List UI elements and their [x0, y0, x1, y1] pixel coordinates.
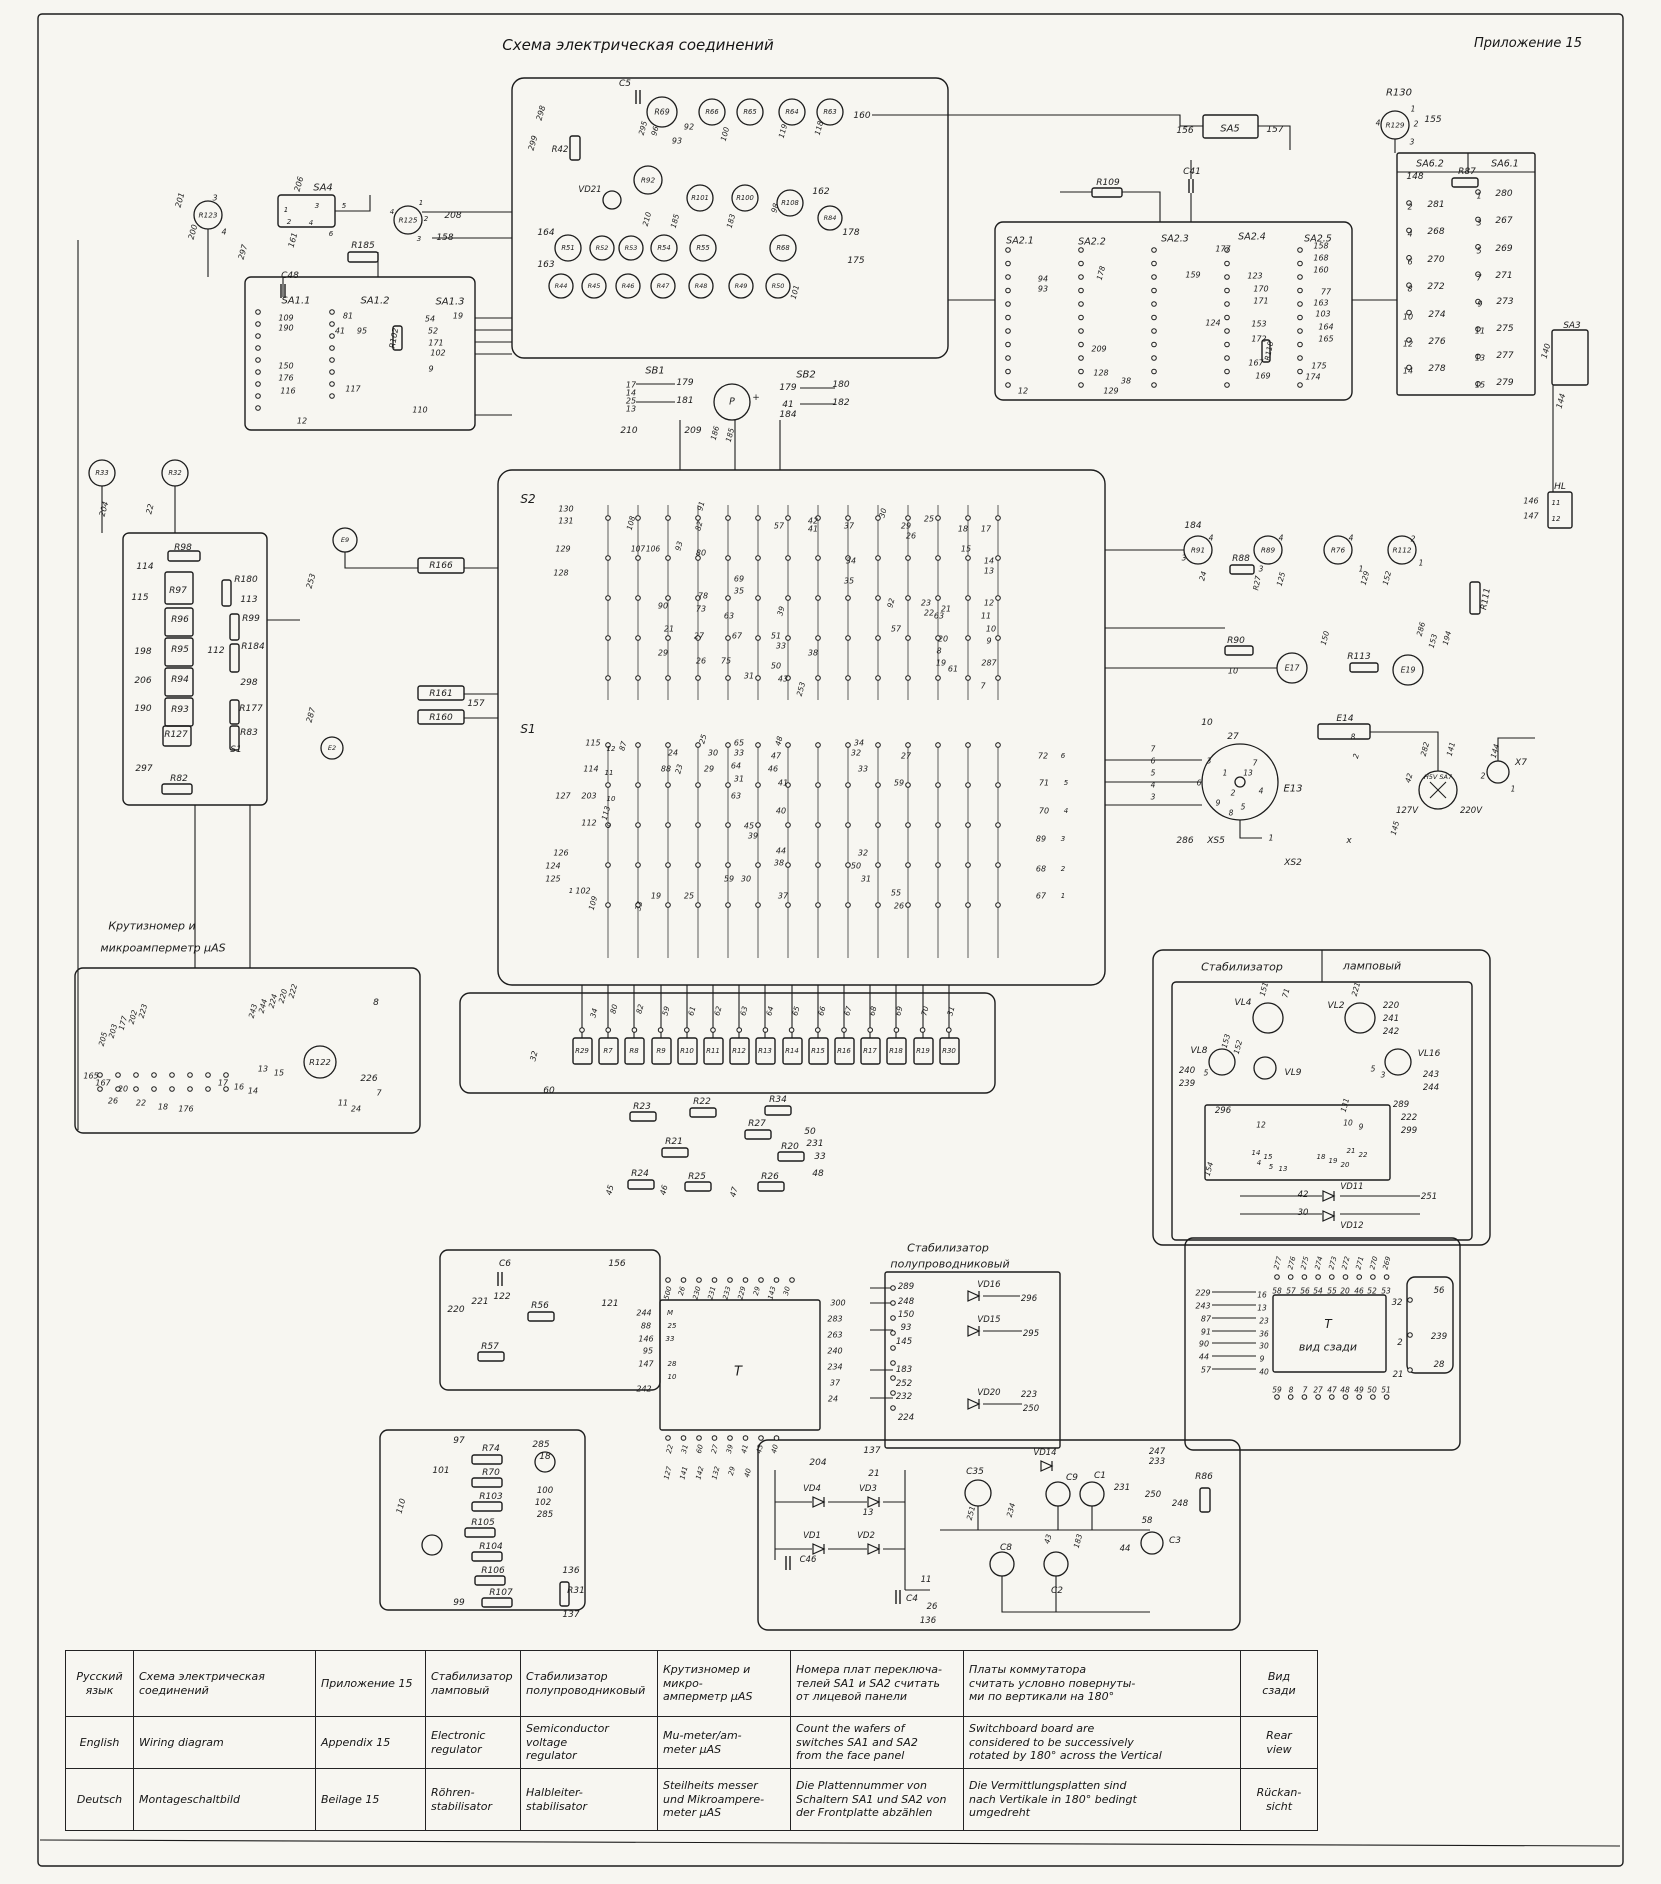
legend-cell: Appendix 15: [316, 1717, 426, 1769]
schematic-label: 13: [1279, 1165, 1288, 1173]
schematic-label: 18: [958, 525, 968, 534]
schematic-label: 106: [646, 545, 661, 554]
component-box: [570, 136, 580, 160]
schematic-label: 10: [1403, 313, 1413, 322]
schematic-label: 157: [1266, 125, 1283, 135]
schematic-label: 250: [1145, 1490, 1161, 1500]
schematic-label: 100: [719, 126, 731, 142]
component-box: [630, 1112, 656, 1121]
schematic-label: R70: [482, 1468, 500, 1478]
component-label: R65: [743, 108, 756, 116]
component-box: [1225, 646, 1253, 655]
schematic-label: 67: [1036, 892, 1047, 901]
contact-dot: [1152, 275, 1157, 280]
schematic-label: 30: [782, 1285, 792, 1296]
schematic-label: R104: [479, 1542, 503, 1552]
schematic-label: 57: [1201, 1366, 1212, 1375]
contact-dot: [816, 823, 821, 828]
schematic-label: 8: [1407, 285, 1412, 294]
schematic-label: R17: [863, 1047, 877, 1055]
schematic-label: +: [752, 393, 760, 403]
contact-dot: [906, 516, 911, 521]
schematic-label: 221: [1350, 981, 1362, 997]
schematic-label: SA6.1: [1491, 159, 1519, 170]
schematic-label: 50: [1367, 1386, 1377, 1395]
schematic-label: 22: [924, 609, 934, 618]
schematic-label: R22: [693, 1097, 711, 1107]
schematic-label: 146: [1523, 497, 1538, 506]
legend-cell: English: [66, 1717, 134, 1769]
schematic-label: 93: [1038, 285, 1048, 294]
schematic-label: 55: [891, 889, 901, 898]
schematic-label: 3: [212, 194, 217, 203]
schematic-label: 15: [961, 545, 971, 554]
component-label: R47: [657, 282, 671, 290]
schematic-label: 8: [1351, 733, 1356, 742]
schematic-label: VL2: [1328, 1001, 1345, 1011]
schematic-label: 232: [896, 1392, 912, 1402]
schematic-label: R96: [171, 615, 189, 625]
schematic-label: 19: [453, 312, 463, 321]
schematic-label: 276: [1286, 1255, 1297, 1271]
schematic-label: 37: [778, 892, 789, 901]
schematic-label: 21: [868, 1469, 879, 1479]
schematic-label: 70: [919, 1005, 930, 1017]
schematic-label: 59: [724, 875, 734, 884]
scanned-wiring-diagram-page: R123R125R69R66R65R64R63R92R101R100R108R8…: [0, 0, 1661, 1884]
schematic-label: 15: [1475, 381, 1485, 390]
schematic-label: 158: [436, 233, 453, 243]
schematic-label: 19: [651, 892, 661, 901]
schematic-label: 47: [1327, 1386, 1337, 1395]
schematic-label: 11: [338, 1099, 348, 1108]
contact-dot: [1079, 383, 1084, 388]
schematic-label: 171: [1253, 297, 1268, 306]
schematic-label: R74: [482, 1444, 500, 1454]
schematic-label: 100: [537, 1486, 553, 1496]
component-label: R33: [95, 469, 108, 477]
table-row: Русский язык Схема электрическая соедине…: [66, 1651, 1318, 1717]
contact-dot: [1343, 1395, 1348, 1400]
component-circle: [1385, 1049, 1411, 1075]
component-circle: [1080, 1482, 1104, 1506]
schematic-label: 297: [135, 764, 152, 774]
schematic-label: R18: [889, 1047, 903, 1055]
schematic-label: R82: [170, 774, 188, 784]
schematic-label: 98: [769, 202, 780, 214]
schematic-label: 95: [643, 1347, 653, 1356]
schematic-label: 26: [696, 657, 706, 666]
contact-dot: [1330, 1395, 1335, 1400]
schematic-label: 32: [858, 849, 868, 858]
schematic-label: 151: [1258, 981, 1270, 997]
schematic-label: 153: [1427, 633, 1439, 649]
component-box: [628, 1180, 654, 1189]
capacitor-icon: [786, 1556, 790, 1570]
schematic-label: 183: [725, 213, 737, 229]
schematic-label: SA2.3: [1161, 234, 1189, 245]
component-label: R66: [705, 108, 718, 116]
schematic-label: 131: [1339, 1097, 1351, 1113]
contact-dot: [891, 1391, 896, 1396]
contact-dot: [1152, 261, 1157, 266]
capacitor-icon: [1189, 179, 1193, 193]
schematic-label: R166: [429, 561, 453, 571]
schematic-label: 19: [1329, 1157, 1338, 1165]
schematic-label: 190: [134, 704, 151, 714]
component-box: [472, 1478, 502, 1487]
schematic-label: 41: [778, 779, 788, 788]
schematic-label: 27: [1227, 732, 1239, 742]
component-box: [222, 580, 231, 606]
contact-dot: [1298, 383, 1303, 388]
contact-dot: [256, 358, 261, 363]
schematic-label: 141: [678, 1466, 689, 1481]
contact-dot: [891, 1286, 896, 1291]
contact-dot: [906, 783, 911, 788]
schematic-label: VL8: [1191, 1046, 1208, 1056]
schematic-label: 9: [1477, 300, 1482, 309]
schematic-label: 50: [804, 1127, 816, 1137]
legend-cell: Крутизномер и микро- амперметр μAS: [658, 1651, 791, 1717]
component-label: R101: [691, 194, 709, 202]
schematic-label: 51: [1381, 1386, 1391, 1395]
contact-dot: [256, 310, 261, 315]
schematic-label: 6: [1151, 757, 1156, 766]
component-box: [38, 14, 1623, 1866]
contact-dot: [1357, 1395, 1362, 1400]
schematic-label: 14: [984, 557, 994, 566]
schematic-label: 1: [1419, 559, 1424, 568]
schematic-label: 33: [858, 765, 868, 774]
component-box: [1230, 565, 1254, 574]
schematic-label: 30: [708, 749, 718, 758]
contact-dot: [170, 1073, 175, 1078]
schematic-label: 21: [1393, 1370, 1404, 1380]
contact-dot: [134, 1087, 139, 1092]
schematic-label: 251: [1421, 1192, 1437, 1202]
contact-dot: [606, 636, 611, 641]
contact-dot: [756, 743, 761, 748]
schematic-label: 167: [95, 1079, 111, 1088]
schematic-label: R130: [1386, 88, 1412, 99]
component-label: R125: [399, 216, 418, 225]
wire: [1240, 820, 1262, 838]
schematic-label: 20: [1341, 1161, 1350, 1169]
schematic-label: 1: [1223, 769, 1228, 778]
contact-dot: [786, 516, 791, 521]
schematic-label: 5: [1371, 1065, 1376, 1074]
contact-dot: [1384, 1275, 1389, 1280]
schematic-label: 19: [936, 659, 946, 668]
contact-dot: [256, 370, 261, 375]
schematic-label: 283: [827, 1315, 842, 1324]
schematic-label: 63: [724, 612, 734, 621]
schematic-label: 46: [1354, 1287, 1364, 1296]
schematic-label: 22: [144, 503, 155, 515]
schematic-label: 89: [1036, 835, 1046, 844]
legend-cell: Вид сзади: [1241, 1651, 1318, 1717]
schematic-label: 4: [1279, 534, 1284, 543]
schematic-label: SA2.2: [1078, 237, 1106, 248]
contact-dot: [936, 823, 941, 828]
contact-dot: [636, 823, 641, 828]
schematic-label: C5: [619, 79, 631, 89]
schematic-label: 157: [467, 699, 484, 709]
schematic-label: 275: [1299, 1255, 1310, 1271]
schematic-label: R29: [575, 1047, 589, 1055]
schematic-label: 251: [965, 1505, 977, 1521]
legend-cell: Die Plattennummer von Schaltern SA1 und …: [791, 1769, 964, 1831]
contact-dot: [876, 783, 881, 788]
schematic-label: 33: [633, 900, 644, 912]
contact-dot: [606, 903, 611, 908]
component-label: R45: [588, 282, 601, 290]
schematic-label: 164: [537, 228, 554, 238]
contact-dot: [606, 676, 611, 681]
schematic-label: 229: [1195, 1289, 1210, 1298]
contact-dot: [1079, 342, 1084, 347]
schematic-label: 46: [658, 1184, 669, 1196]
contact-dot: [763, 1028, 768, 1033]
schematic-label: 123: [1247, 272, 1262, 281]
schematic-label: 137: [863, 1446, 880, 1456]
schematic-label: 5: [1476, 247, 1481, 256]
contact-dot: [1275, 1275, 1280, 1280]
component-circle: [1235, 777, 1245, 787]
component-label: R92: [641, 176, 656, 185]
schematic-label: R97: [169, 586, 187, 596]
schematic-label: VD20: [977, 1388, 1000, 1398]
contact-dot: [846, 636, 851, 641]
contact-dot: [632, 1028, 637, 1033]
schematic-label: 270: [1368, 1255, 1379, 1271]
contact-dot: [966, 676, 971, 681]
schematic-label: 87: [617, 740, 628, 752]
component-label: E17: [1285, 664, 1300, 673]
contact-dot: [1079, 302, 1084, 307]
contact-dot: [906, 636, 911, 641]
contact-dot: [330, 310, 335, 315]
schematic-label: 14: [248, 1087, 258, 1096]
schematic-label: 28: [668, 1360, 677, 1368]
schematic-label: 167: [1248, 359, 1264, 368]
contact-dot: [868, 1028, 873, 1033]
schematic-label: 223: [1021, 1390, 1037, 1400]
contact-dot: [1302, 1395, 1307, 1400]
schematic-label: VD2: [857, 1531, 875, 1541]
component-box: [472, 1552, 502, 1561]
schematic-label: R113: [1347, 652, 1371, 662]
schematic-label: 209: [684, 426, 701, 436]
contact-dot: [996, 516, 1001, 521]
schematic-label: 143: [766, 1286, 777, 1301]
component-label: R76: [1331, 546, 1346, 555]
contact-dot: [1316, 1275, 1321, 1280]
schematic-label: 91: [1201, 1328, 1211, 1337]
contact-dot: [116, 1073, 121, 1078]
schematic-label: 4: [1064, 807, 1068, 815]
schematic-label: 42: [1298, 1190, 1309, 1200]
contact-dot: [756, 783, 761, 788]
schematic-label: 185: [724, 427, 736, 443]
contact-dot: [996, 556, 1001, 561]
component-label: R32: [168, 469, 181, 477]
schematic-label: 124: [1205, 319, 1220, 328]
schematic-label: 277: [1272, 1255, 1283, 1271]
contact-dot: [786, 556, 791, 561]
schematic-label: 47: [771, 752, 782, 761]
contact-dot: [1152, 248, 1157, 253]
contact-dot: [1079, 288, 1084, 293]
contact-dot: [1298, 248, 1303, 253]
component-circle: [1345, 1003, 1375, 1033]
contact-dot: [1225, 275, 1230, 280]
component-label: R55: [696, 244, 709, 252]
contact-dot: [726, 516, 731, 521]
contact-dot: [816, 556, 821, 561]
schematic-label: 4: [1376, 119, 1381, 128]
schematic-label: 43: [755, 1444, 765, 1455]
contact-dot: [1408, 1333, 1413, 1338]
schematic-label: 9: [1260, 1355, 1265, 1364]
schematic-label: 31: [945, 1005, 956, 1017]
component-label: R50: [772, 282, 785, 290]
schematic-label: 8: [936, 647, 941, 656]
schematic-label: R109: [1096, 178, 1120, 188]
schematic-label: 10: [1228, 667, 1238, 676]
schematic-label: 38: [808, 649, 818, 658]
contact-dot: [906, 556, 911, 561]
schematic-label: 165: [1318, 335, 1333, 344]
schematic-label: 248: [898, 1297, 915, 1307]
schematic-label: R177: [239, 704, 263, 714]
schematic-label: VL16: [1418, 1049, 1441, 1059]
contact-dot: [726, 636, 731, 641]
schematic-label: 40: [1259, 1368, 1269, 1377]
contact-dot: [876, 596, 881, 601]
schematic-label: 1: [1476, 192, 1481, 201]
schematic-label: VD11: [1340, 1182, 1363, 1192]
contact-dot: [891, 1331, 896, 1336]
schematic-label: 39: [725, 1443, 735, 1454]
component-box: [1397, 153, 1535, 395]
schematic-label: R30: [942, 1047, 956, 1055]
schematic-label: 50: [851, 862, 861, 871]
schematic-label: 136: [562, 1566, 579, 1576]
diode-icon: [968, 1291, 979, 1301]
schematic-label: 176: [178, 1105, 193, 1114]
schematic-label: 129: [1103, 387, 1118, 396]
schematic-label: 2: [1061, 865, 1066, 873]
contact-dot: [891, 1316, 896, 1321]
schematic-label: 80: [696, 549, 706, 558]
schematic-label: C4: [906, 1594, 918, 1604]
contact-dot: [876, 863, 881, 868]
contact-dot: [1006, 329, 1011, 334]
schematic-label: 27: [694, 632, 705, 641]
contact-dot: [759, 1278, 764, 1283]
schematic-label: C9: [1066, 1473, 1078, 1483]
schematic-label: 10: [986, 625, 996, 634]
contact-dot: [737, 1028, 742, 1033]
contact-dot: [1152, 302, 1157, 307]
contact-dot: [1006, 248, 1011, 253]
contact-dot: [936, 596, 941, 601]
contact-dot: [1302, 1275, 1307, 1280]
schematic-label: 58: [1142, 1516, 1153, 1526]
schematic-label: Стабилизатор: [907, 1242, 989, 1255]
contact-dot: [846, 823, 851, 828]
contact-dot: [726, 903, 731, 908]
component-label: R123: [199, 211, 218, 220]
schematic-label: 163: [1313, 299, 1328, 308]
schematic-label: 99: [453, 1598, 465, 1608]
schematic-label: 178: [842, 228, 859, 238]
contact-dot: [256, 322, 261, 327]
schematic-label: 274: [1313, 1256, 1324, 1271]
contact-dot: [1006, 356, 1011, 361]
contact-dot: [816, 743, 821, 748]
schematic-label: C8: [1000, 1543, 1012, 1553]
contact-dot: [906, 823, 911, 828]
contact-dot: [786, 823, 791, 828]
schematic-label: 244: [636, 1309, 651, 1318]
schematic-label: 48: [812, 1169, 824, 1179]
component-label: R63: [823, 108, 836, 116]
schematic-label: 278: [1428, 364, 1445, 374]
schematic-label: 3: [1151, 793, 1156, 802]
schematic-label: 44: [1120, 1544, 1131, 1554]
schematic-label: 127V: [1396, 806, 1419, 816]
contact-dot: [712, 1278, 717, 1283]
schematic-label: 160: [1313, 266, 1328, 275]
contact-dot: [681, 1278, 686, 1283]
schematic-label: 113: [600, 805, 612, 821]
schematic-label: VD12: [1340, 1221, 1363, 1231]
contact-dot: [1006, 302, 1011, 307]
contact-dot: [330, 322, 335, 327]
contact-dot: [188, 1073, 193, 1078]
schematic-label: 206: [134, 676, 151, 686]
contact-dot: [906, 903, 911, 908]
schematic-label: 268: [1427, 227, 1444, 237]
contact-dot: [906, 676, 911, 681]
schematic-label: 57: [1286, 1287, 1296, 1296]
schematic-label: 136: [920, 1616, 937, 1626]
component-box: [472, 1455, 502, 1464]
schematic-label: 114: [136, 562, 153, 572]
diode-icon: [1323, 1191, 1334, 1201]
schematic-label: 107: [631, 545, 646, 554]
schematic-label: 63: [934, 612, 944, 621]
schematic-label: 240: [827, 1347, 842, 1356]
schematic-label: 25: [697, 733, 708, 745]
schematic-label: 66: [816, 1005, 827, 1017]
schematic-label: 4: [1151, 781, 1156, 790]
schematic-label: S1: [520, 722, 535, 736]
schematic-label: 3: [1207, 757, 1212, 766]
schematic-label: R12: [732, 1047, 746, 1055]
schematic-label: C41: [1183, 167, 1201, 177]
schematic-label: 18: [1317, 1153, 1326, 1161]
schematic-label: 9: [428, 365, 433, 374]
contact-dot: [1225, 383, 1230, 388]
component-label: R68: [776, 244, 789, 252]
schematic-label: 128: [1093, 369, 1108, 378]
schematic-label: 221: [471, 1297, 488, 1307]
schematic-label: 287: [305, 706, 318, 724]
